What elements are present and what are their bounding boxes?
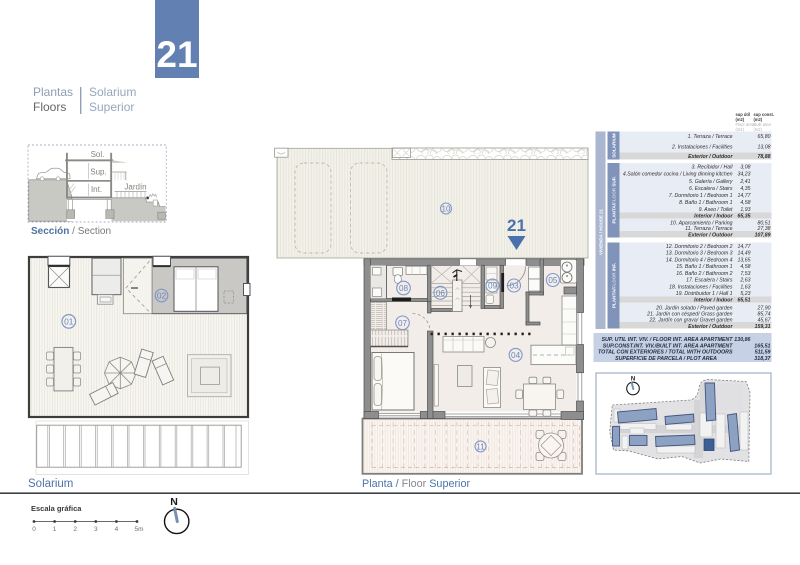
svg-text:65,80: 65,80 (758, 134, 771, 140)
svg-text:65,51: 65,51 (738, 298, 751, 304)
svg-text:14,49: 14,49 (738, 251, 751, 257)
svg-text:4,58: 4,58 (740, 200, 750, 206)
svg-text:Sol.: Sol. (91, 150, 105, 159)
svg-text:318,37: 318,37 (754, 356, 771, 362)
svg-text:16. Baño 2 / Bathroom 2: 16. Baño 2 / Bathroom 2 (676, 271, 732, 277)
svg-text:Int.: Int. (91, 185, 102, 194)
svg-text:10: 10 (442, 204, 451, 213)
svg-text:21: 21 (156, 34, 197, 75)
svg-text:65,35: 65,35 (738, 214, 751, 220)
svg-text:14. Dormitorio 4 / Bedroom 4: 14. Dormitorio 4 / Bedroom 4 (666, 257, 733, 263)
svg-text:1,93: 1,93 (740, 207, 750, 213)
svg-text:03: 03 (509, 281, 519, 290)
svg-text:8. Baño 1 / Bathroom 1: 8. Baño 1 / Bathroom 1 (679, 200, 732, 206)
svg-text:2. Instalaciones / Facilities: 2. Instalaciones / Facilities (671, 145, 733, 151)
svg-text:PLANTA/FLOOR INF.: PLANTA/FLOOR INF. (612, 263, 617, 308)
svg-text:2,41: 2,41 (739, 179, 750, 185)
svg-text:07: 07 (398, 319, 408, 328)
svg-text:159,31: 159,31 (755, 324, 771, 330)
svg-text:5,23: 5,23 (740, 291, 750, 297)
svg-text:3. Recibidor / Hall: 3. Recibidor / Hall (692, 165, 734, 171)
svg-text:5m: 5m (134, 526, 143, 533)
svg-text:3,08: 3,08 (740, 165, 750, 171)
svg-text:Interior / Indoor: Interior / Indoor (694, 214, 733, 220)
svg-text:45,67: 45,67 (758, 317, 772, 323)
svg-text:TOTAL CON EXTERIORES / TOTAL W: TOTAL CON EXTERIORES / TOTAL WITH OUTDOO… (598, 350, 733, 356)
svg-text:19. Distribuidor 1 / Hall 1: 19. Distribuidor 1 / Hall 1 (676, 291, 733, 297)
svg-text:Escala gráfica: Escala gráfica (31, 504, 82, 513)
svg-text:SUPERFICIE DE PARCELA / PLOT A: SUPERFICIE DE PARCELA / PLOT AREA (615, 356, 717, 362)
svg-text:13. Dormitorio 3 / Bedroom 3: 13. Dormitorio 3 / Bedroom 3 (666, 251, 733, 257)
svg-text:1,63: 1,63 (740, 284, 750, 290)
svg-text:13,65: 13,65 (738, 257, 751, 263)
svg-text:11. Terraza / Terrace: 11. Terraza / Terrace (685, 226, 732, 232)
svg-text:107,89: 107,89 (755, 232, 771, 238)
svg-text:N: N (170, 496, 178, 508)
svg-text:09: 09 (488, 282, 498, 291)
svg-text:9. Aseo / Toilet: 9. Aseo / Toilet (699, 207, 733, 213)
svg-text:511,59: 511,59 (755, 350, 771, 356)
svg-text:02: 02 (157, 291, 167, 301)
svg-text:04: 04 (511, 351, 521, 360)
svg-text:N: N (631, 377, 635, 383)
svg-text:Plantas: Plantas (33, 85, 73, 99)
svg-text:SOLARIUM: SOLARIUM (612, 133, 617, 158)
svg-text:(m2): (m2) (754, 127, 763, 132)
svg-text:(m2): (m2) (736, 127, 745, 132)
svg-text:7,53: 7,53 (740, 271, 750, 277)
svg-text:12. Dormitorio 2 / Bedroom 2: 12. Dormitorio 2 / Bedroom 2 (666, 244, 733, 250)
svg-text:5. Galería / Gallery: 5. Galería / Gallery (689, 179, 733, 185)
svg-text:06: 06 (436, 289, 446, 298)
svg-text:130,86: 130,86 (734, 337, 750, 343)
svg-text:Sup.: Sup. (90, 167, 106, 176)
svg-text:PLANTA/FLOOR SUP.: PLANTA/FLOOR SUP. (612, 176, 617, 223)
svg-text:4,58: 4,58 (740, 264, 750, 270)
svg-text:VIVIENDA / HOUSE 21: VIVIENDA / HOUSE 21 (599, 208, 604, 255)
svg-text:4: 4 (115, 526, 119, 533)
svg-text:Sección / Section: Sección / Section (31, 226, 111, 237)
svg-text:14,77: 14,77 (738, 193, 752, 199)
svg-text:SUP. UTIL INT. VIV. / FLOOR IN: SUP. UTIL INT. VIV. / FLOOR INT. AREA AP… (601, 337, 733, 343)
svg-text:Planta / Floor Superior: Planta / Floor Superior (362, 478, 470, 490)
svg-text:34,23: 34,23 (738, 172, 751, 178)
svg-text:Exterior / Outdoor: Exterior / Outdoor (688, 154, 733, 160)
svg-text:78,88: 78,88 (758, 154, 771, 160)
svg-text:SUP.CONST.INT. VIV./BUILT INT.: SUP.CONST.INT. VIV./BUILT INT. AREA APAR… (603, 343, 734, 349)
svg-text:08: 08 (399, 284, 409, 293)
svg-text:15. Baño 1 / Bathroom 1: 15. Baño 1 / Bathroom 1 (676, 264, 732, 270)
svg-text:2,63: 2,63 (739, 278, 750, 284)
svg-text:18. Instalaciones / Facilities: 18. Instalaciones / Facilities (669, 284, 733, 290)
svg-text:13,08: 13,08 (758, 145, 771, 151)
svg-text:14,77: 14,77 (738, 244, 752, 250)
svg-text:7. Dormitorio 1 / Bedroom 1: 7. Dormitorio 1 / Bedroom 1 (669, 193, 733, 199)
svg-text:22. Jardín con grava/ Gravel g: 22. Jardín con grava/ Gravel garden (648, 317, 732, 323)
svg-text:Superior: Superior (89, 100, 134, 114)
svg-text:Exterior / Outdoor: Exterior / Outdoor (688, 324, 733, 330)
svg-text:05: 05 (548, 276, 558, 285)
svg-text:17. Escalera / Stairs: 17. Escalera / Stairs (686, 278, 733, 284)
svg-text:11: 11 (476, 442, 485, 451)
svg-text:6. Escalera / Stairs: 6. Escalera / Stairs (689, 186, 733, 192)
svg-text:Floors: Floors (33, 100, 66, 114)
svg-text:2: 2 (73, 526, 77, 533)
svg-text:4.Salón comedor cocina / Livin: 4.Salón comedor cocina / Living dinning … (623, 172, 733, 178)
svg-text:01: 01 (64, 316, 74, 326)
svg-text:4,35: 4,35 (740, 186, 750, 192)
svg-text:1. Terraza / Terrace: 1. Terraza / Terrace (688, 134, 733, 140)
svg-text:Interior / Indoor: Interior / Indoor (694, 298, 733, 304)
svg-text:0: 0 (32, 526, 36, 533)
svg-text:165,51: 165,51 (754, 343, 770, 349)
svg-text:Solarium: Solarium (28, 478, 73, 490)
svg-text:Exterior / Outdoor: Exterior / Outdoor (688, 232, 733, 238)
svg-text:1: 1 (53, 526, 57, 533)
svg-text:Solarium: Solarium (89, 85, 136, 99)
svg-text:21: 21 (507, 216, 526, 235)
svg-text:27,38: 27,38 (757, 226, 771, 232)
svg-text:Jardín: Jardín (124, 183, 146, 192)
svg-text:3: 3 (94, 526, 98, 533)
